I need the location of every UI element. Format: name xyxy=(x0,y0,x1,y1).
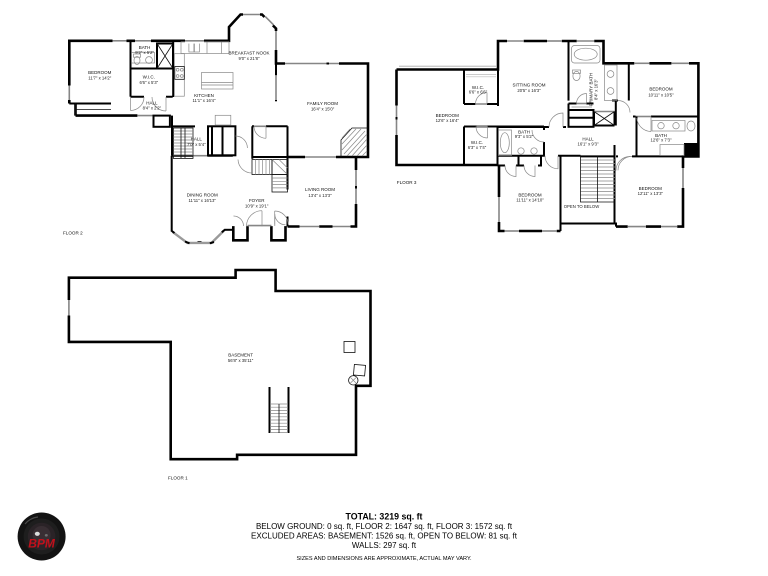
svg-text:9'0" x 21'8": 9'0" x 21'8" xyxy=(239,56,260,61)
svg-text:8'4" x 16'3": 8'4" x 16'3" xyxy=(594,79,599,100)
svg-text:FAMILY ROOM: FAMILY ROOM xyxy=(307,101,338,106)
svg-text:WALLS: 297 sq. ft: WALLS: 297 sq. ft xyxy=(352,541,417,550)
svg-text:20'5" x 16'3": 20'5" x 16'3" xyxy=(517,88,541,93)
svg-text:8'4" x 2'2": 8'4" x 2'2" xyxy=(143,106,162,111)
svg-text:12'11" x 13'3": 12'11" x 13'3" xyxy=(638,191,664,196)
svg-text:10'9" x 19'1": 10'9" x 19'1" xyxy=(245,204,269,209)
svg-text:DINING ROOM: DINING ROOM xyxy=(187,193,218,198)
svg-text:10'11" x 10'5": 10'11" x 10'5" xyxy=(648,93,674,98)
svg-text:12'6" x 7'3": 12'6" x 7'3" xyxy=(651,138,672,143)
svg-text:SITTING ROOM: SITTING ROOM xyxy=(513,83,546,88)
svg-text:BASEMENT: BASEMENT xyxy=(228,353,253,358)
svg-text:SIZES AND DIMENSIONS ARE APPRO: SIZES AND DIMENSIONS ARE APPROXIMATE, AC… xyxy=(296,556,472,562)
svg-text:16'4" x 15'0": 16'4" x 15'0" xyxy=(311,106,335,111)
svg-text:EXCLUDED AREAS: BASEMENT: 1526: EXCLUDED AREAS: BASEMENT: 1526 sq. ft, O… xyxy=(251,532,518,541)
svg-text:OPEN TO BELOW: OPEN TO BELOW xyxy=(564,204,600,209)
svg-text:TOTAL: 3219 sq. ft: TOTAL: 3219 sq. ft xyxy=(346,512,423,522)
svg-text:11'7" x 14'2": 11'7" x 14'2" xyxy=(88,75,111,80)
svg-text:KITCHEN: KITCHEN xyxy=(194,93,214,98)
svg-text:9'2" x 5'2": 9'2" x 5'2" xyxy=(135,50,154,55)
svg-text:LIVING ROOM: LIVING ROOM xyxy=(305,187,335,192)
svg-text:56'8" x 35'11": 56'8" x 35'11" xyxy=(228,358,254,363)
svg-text:7'0" x 5'4": 7'0" x 5'4" xyxy=(187,142,206,147)
svg-text:13'4" x 13'3": 13'4" x 13'3" xyxy=(308,193,332,198)
svg-text:11'1" x 16'4": 11'1" x 16'4" xyxy=(193,98,216,103)
svg-text:11'11" x 16'13": 11'11" x 16'13" xyxy=(188,198,216,203)
svg-text:9'3" x 5'2": 9'3" x 5'2" xyxy=(515,134,534,139)
svg-text:FLOOR 3: FLOOR 3 xyxy=(397,180,417,185)
svg-text:FLOOR 1: FLOOR 1 xyxy=(168,476,188,481)
svg-text:FLOOR 2: FLOOR 2 xyxy=(63,231,83,236)
svg-text:6'6" x 5'3": 6'6" x 5'3" xyxy=(140,80,159,85)
svg-text:BPM: BPM xyxy=(28,537,56,551)
svg-text:BELOW GROUND: 0 sq. ft, FLOOR: BELOW GROUND: 0 sq. ft, FLOOR 2: 1647 sq… xyxy=(256,522,513,531)
svg-text:11'11" x 14'10": 11'11" x 14'10" xyxy=(516,197,544,202)
svg-text:12'6" x 16'4": 12'6" x 16'4" xyxy=(436,118,460,123)
svg-text:6'3" x 7'4": 6'3" x 7'4" xyxy=(468,145,487,150)
svg-text:BREAKFAST NOOK: BREAKFAST NOOK xyxy=(229,51,270,56)
svg-text:HALL: HALL xyxy=(191,137,203,142)
svg-text:BEDROOM: BEDROOM xyxy=(88,70,112,75)
svg-text:FOYER: FOYER xyxy=(249,198,265,203)
svg-text:HALL: HALL xyxy=(146,100,158,105)
svg-text:6'6" x 6'6": 6'6" x 6'6" xyxy=(469,90,488,95)
svg-text:BEDROOM: BEDROOM xyxy=(649,87,673,92)
svg-text:16'1" x 9'3": 16'1" x 9'3" xyxy=(578,142,599,147)
svg-text:W.I.C.: W.I.C. xyxy=(143,75,155,80)
